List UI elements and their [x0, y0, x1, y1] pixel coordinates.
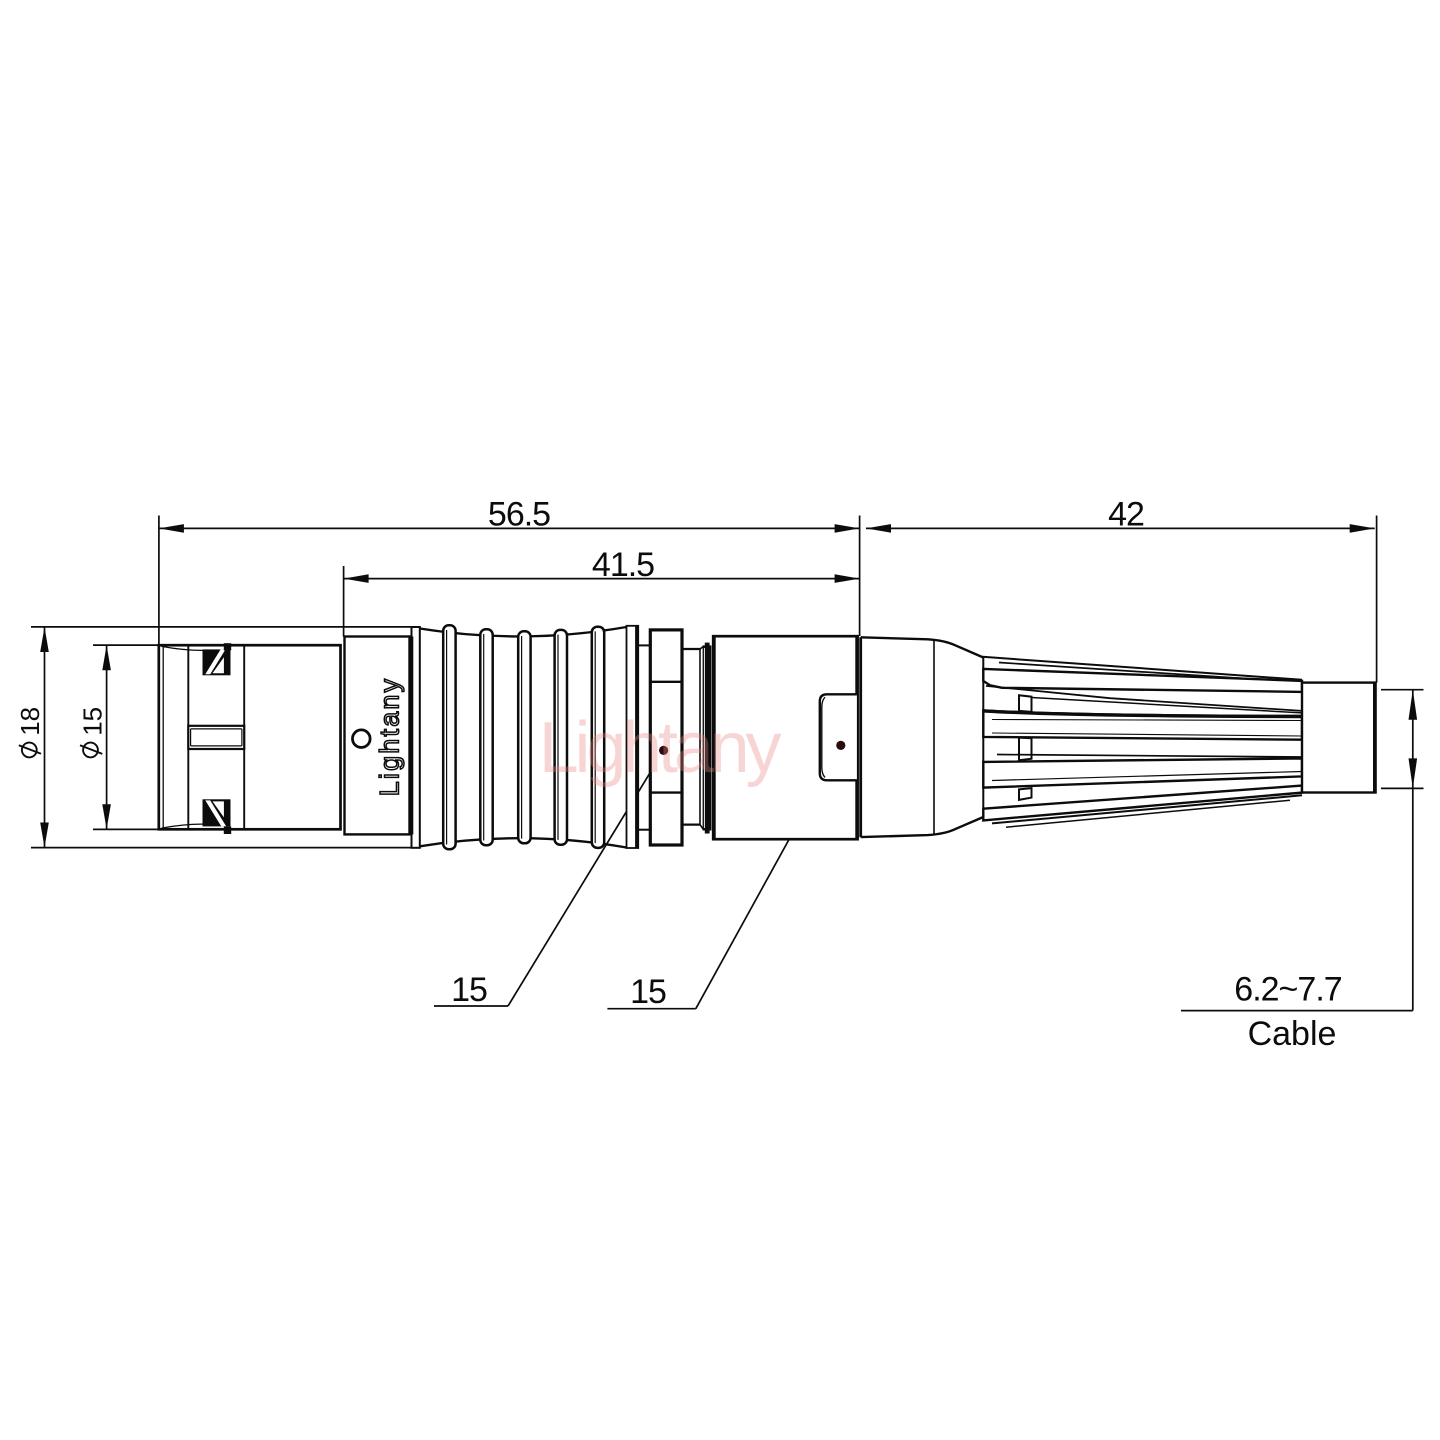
svg-text:56.5: 56.5: [488, 496, 550, 534]
svg-text:Lightany: Lightany: [539, 708, 782, 788]
svg-text:41.5: 41.5: [592, 546, 654, 584]
svg-text:15: 15: [78, 707, 108, 736]
svg-text:Cable: Cable: [1248, 1015, 1337, 1053]
svg-text:42: 42: [1108, 496, 1144, 534]
svg-text:15: 15: [630, 973, 666, 1011]
svg-text:15: 15: [451, 971, 487, 1009]
svg-text:Lightany: Lightany: [375, 677, 405, 797]
svg-text:18: 18: [15, 707, 45, 736]
svg-text:6.2~7.7: 6.2~7.7: [1234, 971, 1341, 1009]
